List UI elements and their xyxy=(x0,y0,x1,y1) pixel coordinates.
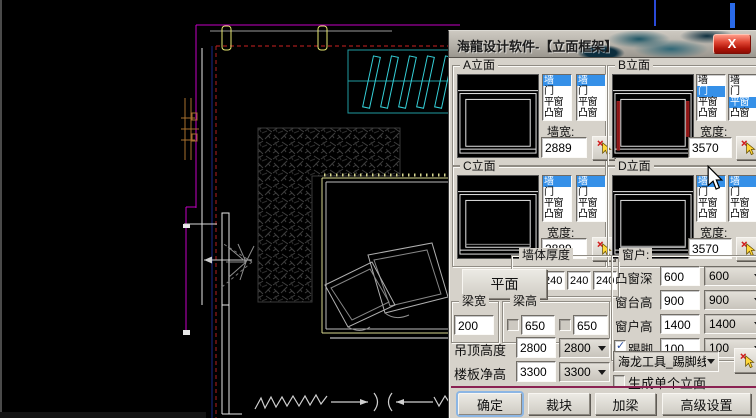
list-item-door[interactable]: 门 xyxy=(543,187,571,198)
list-item-wall[interactable]: 墙 xyxy=(729,75,756,86)
add-beam-button[interactable]: 加梁 xyxy=(595,393,656,415)
list-item-bay-window[interactable]: 凸窗 xyxy=(697,209,725,220)
floor-height-dropdown[interactable]: 3300 xyxy=(559,362,610,382)
advanced-settings-button[interactable]: 高级设置 xyxy=(662,393,751,415)
sill-height-dropdown[interactable]: 900 xyxy=(704,290,756,310)
sill-height-label: 窗台高 xyxy=(615,292,653,311)
beam-height-checkbox-1[interactable] xyxy=(507,319,519,331)
list-item-flat-window[interactable]: 平窗 xyxy=(543,97,571,108)
list-item-door[interactable]: 门 xyxy=(577,187,605,198)
ceiling-height-dropdown[interactable]: 2800 xyxy=(559,338,610,358)
elevation-a-label: A立面 xyxy=(460,58,498,72)
list-item-bay-window[interactable]: 凸窗 xyxy=(729,209,756,220)
ceiling-height-input[interactable] xyxy=(516,337,556,358)
window-height-dropdown[interactable]: 1400 xyxy=(704,314,756,334)
elevation-c-list-2[interactable]: 墙 门 平窗 凸窗 xyxy=(576,175,606,222)
list-item-flat-window[interactable]: 平窗 xyxy=(697,198,725,209)
elevation-b-list-2[interactable]: 墙 门 平窗 凸窗 xyxy=(728,74,756,121)
list-item-flat-window[interactable]: 平窗 xyxy=(729,198,756,209)
app-screen: 海龍设计软件-【立面框架】 X A立面 墙 门 平窗 凸窗 墙 门 平窗 xyxy=(0,0,756,418)
list-item-bay-window[interactable]: 凸窗 xyxy=(697,108,725,119)
dialog-titlebar[interactable]: 海龍设计软件-【立面框架】 X xyxy=(449,31,756,58)
dialog-title: 海龍设计软件-【立面框架】 xyxy=(457,36,617,55)
list-item-door[interactable]: 门 xyxy=(729,86,756,97)
tool-dropdown[interactable]: 海龙工具_踢脚线 xyxy=(613,351,719,372)
list-item-flat-window[interactable]: 平窗 xyxy=(729,97,756,108)
beam-width-input[interactable] xyxy=(454,315,494,335)
list-item-wall[interactable]: 墙 xyxy=(577,75,605,86)
beam-width-group: 梁宽 xyxy=(451,301,499,343)
window-group: 窗户: 凸窗深 600 窗台高 900 窗户高 1400 踢脚 xyxy=(611,255,756,361)
generate-single-label: 生成单个立面 xyxy=(628,373,706,392)
bay-depth-input[interactable] xyxy=(660,266,700,286)
bay-depth-label: 凸窗深 xyxy=(615,268,653,287)
list-item-wall[interactable]: 墙 xyxy=(697,75,725,86)
tool-pick-button[interactable] xyxy=(734,348,756,373)
list-item-flat-window[interactable]: 平窗 xyxy=(577,198,605,209)
elevation-a-list-1[interactable]: 墙 门 平窗 凸窗 xyxy=(542,74,572,121)
list-item-flat-window[interactable]: 平窗 xyxy=(543,198,571,209)
sill-height-dropdown-value: 900 xyxy=(709,293,729,307)
elevation-c-label: C立面 xyxy=(460,159,499,173)
list-item-bay-window[interactable]: 凸窗 xyxy=(729,108,756,119)
pick-cursor-icon xyxy=(740,139,756,156)
elevation-a-width-input[interactable] xyxy=(541,137,587,158)
list-item-flat-window[interactable]: 平窗 xyxy=(697,97,725,108)
list-item-bay-window[interactable]: 凸窗 xyxy=(543,209,571,220)
elevation-a-group: A立面 墙 门 平窗 凸窗 墙 门 平窗 凸窗 墙宽: xyxy=(452,65,606,166)
elevation-c-list-1[interactable]: 墙 门 平窗 凸窗 xyxy=(542,175,572,222)
elevation-a-list-2[interactable]: 墙 门 平窗 凸窗 xyxy=(576,74,606,121)
list-item-wall[interactable]: 墙 xyxy=(577,176,605,187)
chevron-down-icon xyxy=(707,359,715,368)
beam-height-input-2[interactable] xyxy=(573,315,608,335)
list-item-bay-window[interactable]: 凸窗 xyxy=(577,209,605,220)
elevation-c-preview[interactable] xyxy=(457,175,539,259)
elevation-a-preview[interactable] xyxy=(457,74,539,158)
elevation-b-label: B立面 xyxy=(615,58,653,72)
list-item-door[interactable]: 门 xyxy=(543,86,571,97)
sill-height-input[interactable] xyxy=(660,290,700,310)
cut-block-button[interactable]: 裁块 xyxy=(528,393,590,415)
list-item-flat-window[interactable]: 平窗 xyxy=(577,97,605,108)
list-item-bay-window[interactable]: 凸窗 xyxy=(577,108,605,119)
list-item-wall[interactable]: 墙 xyxy=(543,176,571,187)
elevation-b-preview[interactable] xyxy=(612,74,694,158)
separator-line xyxy=(451,386,756,388)
floor-height-input[interactable] xyxy=(516,361,556,382)
beam-height-input-1[interactable] xyxy=(521,315,555,335)
ceiling-height-dropdown-value: 2800 xyxy=(564,341,591,355)
mouse-cursor xyxy=(706,165,724,191)
beam-width-label: 梁宽 xyxy=(459,294,489,308)
close-button[interactable]: X xyxy=(713,34,751,54)
elevation-b-group: B立面 墙 门 平窗 凸窗 墙 门 平窗 凸窗 xyxy=(607,65,756,166)
chevron-down-icon xyxy=(598,346,606,355)
wall-thickness-label: 墙体厚度 xyxy=(519,248,573,262)
window-height-input[interactable] xyxy=(660,314,700,334)
elevation-b-pick-button[interactable] xyxy=(736,136,756,160)
floor-height-label: 楼板净高 xyxy=(454,364,506,383)
wall-thickness-input-3[interactable] xyxy=(567,271,591,290)
list-item-door[interactable]: 门 xyxy=(697,86,725,97)
list-item-wall[interactable]: 墙 xyxy=(543,75,571,86)
elevation-frame-dialog: 海龍设计软件-【立面框架】 X A立面 墙 门 平窗 凸窗 墙 门 平窗 xyxy=(448,30,756,418)
window-height-label: 窗户高 xyxy=(615,316,653,335)
list-item-door[interactable]: 门 xyxy=(577,86,605,97)
elevation-b-list-1[interactable]: 墙 门 平窗 凸窗 xyxy=(696,74,726,121)
list-item-door[interactable]: 门 xyxy=(729,187,756,198)
list-item-bay-window[interactable]: 凸窗 xyxy=(543,108,571,119)
bay-depth-dropdown[interactable]: 600 xyxy=(704,266,756,286)
floor-height-dropdown-value: 3300 xyxy=(564,365,591,379)
list-item-wall[interactable]: 墙 xyxy=(729,176,756,187)
beam-height-label: 梁高 xyxy=(510,294,540,308)
elevation-d-list-2[interactable]: 墙 门 平窗 凸窗 xyxy=(728,175,756,222)
elevation-b-width-input[interactable] xyxy=(688,137,732,158)
chevron-down-icon xyxy=(598,370,606,379)
bay-depth-dropdown-value: 600 xyxy=(709,269,729,283)
beam-height-checkbox-2[interactable] xyxy=(559,319,571,331)
window-group-label: 窗户: xyxy=(619,248,652,262)
tool-dropdown-value: 海龙工具_踢脚线 xyxy=(618,353,706,370)
window-height-dropdown-value: 1400 xyxy=(709,317,736,331)
elevation-d-label: D立面 xyxy=(615,159,654,173)
elevation-d-preview[interactable] xyxy=(612,175,694,259)
pick-cursor-icon xyxy=(739,352,756,369)
ceiling-height-label: 吊顶高度 xyxy=(454,340,506,359)
ok-button[interactable]: 确定 xyxy=(458,393,522,415)
